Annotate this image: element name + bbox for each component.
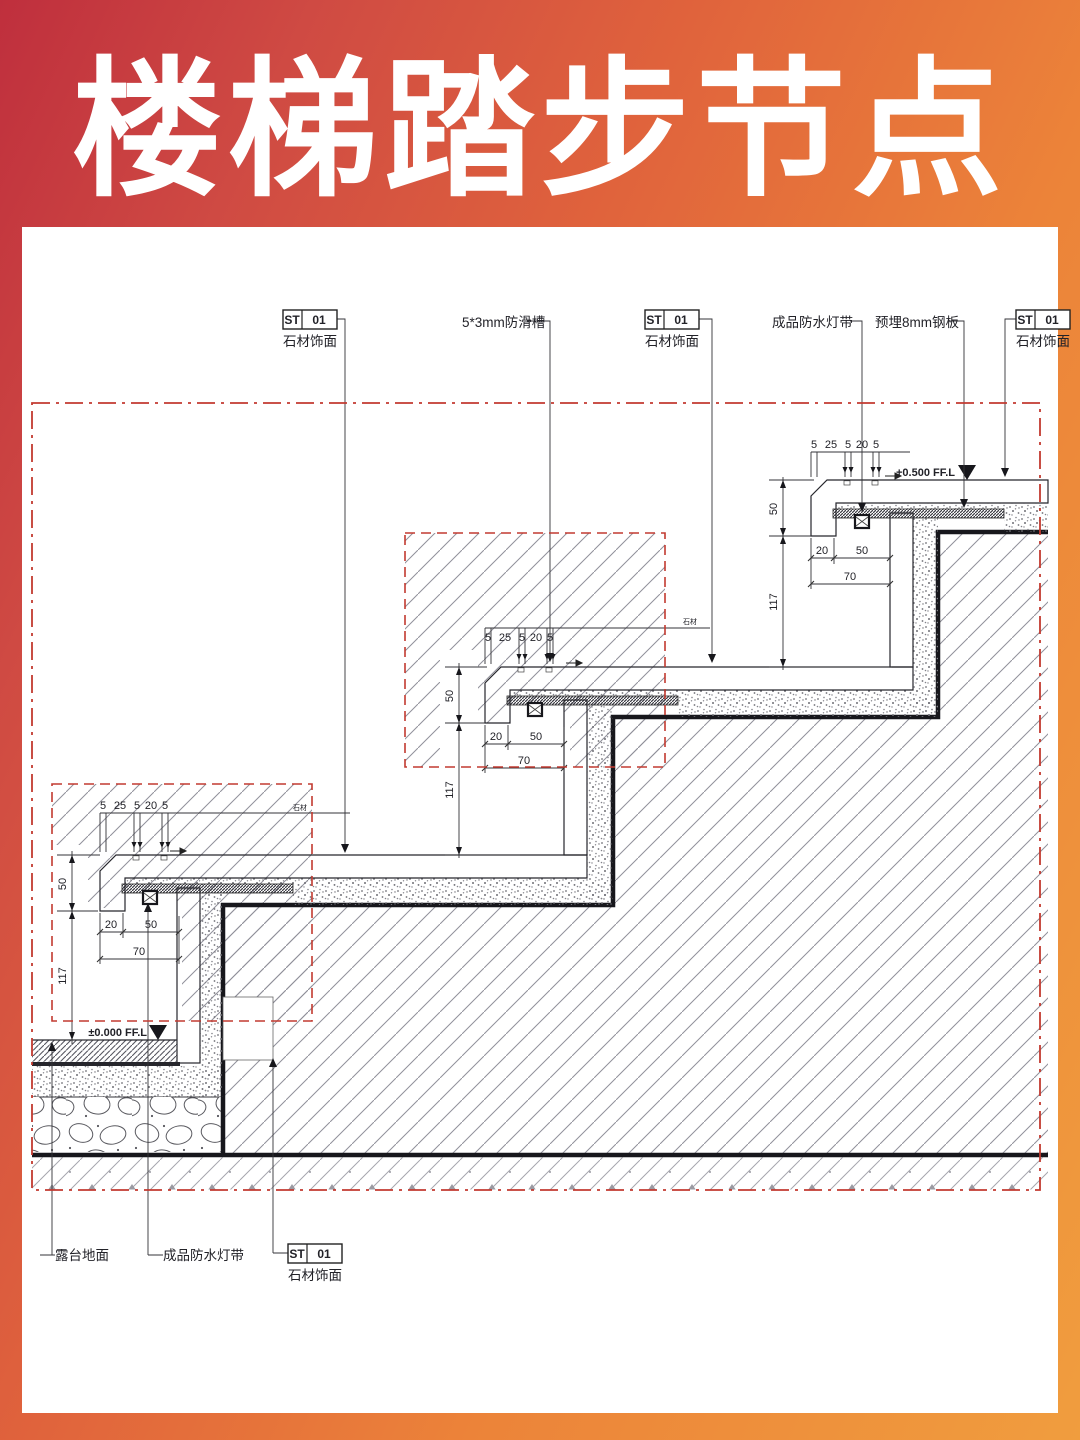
svg-text:5: 5 [845,439,851,451]
level-triangle [149,1025,167,1040]
svg-text:20: 20 [145,800,157,812]
svg-text:ST: ST [646,313,662,327]
svg-text:石材饰面: 石材饰面 [645,334,699,349]
svg-text:石材饰面: 石材饰面 [1016,334,1070,349]
svg-text:50: 50 [530,731,542,743]
anti-slip-groove [844,481,850,485]
svg-text:25: 25 [499,632,511,644]
svg-text:5: 5 [811,439,817,451]
svg-text:01: 01 [1045,313,1059,327]
svg-text:5: 5 [519,632,525,644]
anti-slip-groove [546,668,552,672]
svg-text:石材: 石材 [293,803,307,812]
stone-tag-3: ST 01 石材饰面 [1016,310,1070,349]
svg-text:20: 20 [816,545,828,557]
light-strip-label: 成品防水灯带 [772,315,853,330]
svg-text:20: 20 [530,632,542,644]
svg-text:01: 01 [312,313,326,327]
svg-text:5: 5 [485,632,491,644]
svg-text:±0.000 FF.L: ±0.000 FF.L [88,1027,147,1039]
svg-text:25: 25 [114,800,126,812]
svg-text:ST: ST [284,313,300,327]
svg-text:01: 01 [317,1247,331,1261]
svg-text:117: 117 [768,593,780,611]
steel-plate-label: 预埋8mm钢板 [875,315,959,330]
anti-slip-groove [518,668,524,672]
dims-step-3: 5 25 5 20 5 50 117 20 50 70 [768,439,910,670]
svg-text:70: 70 [133,946,145,958]
svg-text:石材: 石材 [683,617,697,626]
svg-text:+0.500 FF.L: +0.500 FF.L [896,467,955,479]
light-strip-label-2: 成品防水灯带 [163,1248,244,1263]
poster-page: 楼梯踏步节点 [0,0,1080,1440]
terrace-floor-label: 露台地面 [55,1248,109,1263]
stone-tag-2: ST 01 石材饰面 [645,310,699,349]
svg-text:50: 50 [444,690,456,702]
svg-text:70: 70 [844,571,856,583]
svg-text:5: 5 [162,800,168,812]
svg-text:117: 117 [444,781,456,799]
svg-text:25: 25 [825,439,837,451]
terrace-floor-layers [32,1040,223,1152]
svg-text:石材饰面: 石材饰面 [283,334,337,349]
stone-tag-4: ST 01 石材饰面 [288,1244,342,1283]
anti-slip-groove [872,481,878,485]
svg-text:20: 20 [105,919,117,931]
svg-text:5: 5 [134,800,140,812]
svg-text:50: 50 [57,878,69,890]
stone-riser [890,513,913,667]
anti-slip-groove [133,856,139,860]
svg-text:70: 70 [518,755,530,767]
svg-text:50: 50 [856,545,868,557]
svg-text:ST: ST [1017,313,1033,327]
leader-mask-box [223,997,273,1060]
anti-slip-label: 5*3mm防滑槽 [462,315,545,330]
stone-tag-1: ST 01 石材饰面 [283,310,337,349]
svg-text:5: 5 [873,439,879,451]
soil-hatch [32,1158,1048,1190]
svg-text:5: 5 [100,800,106,812]
stair-detail-drawing: 5 25 5 20 5 石材 50 117 20 50 70 5 25 5 20… [0,0,1080,1440]
svg-text:石材饰面: 石材饰面 [288,1268,342,1283]
level-triangle [958,465,976,480]
svg-text:50: 50 [145,919,157,931]
svg-text:117: 117 [57,967,69,985]
svg-text:50: 50 [768,503,780,515]
svg-text:20: 20 [490,731,502,743]
svg-text:ST: ST [289,1247,305,1261]
svg-text:01: 01 [674,313,688,327]
anti-slip-groove [161,856,167,860]
